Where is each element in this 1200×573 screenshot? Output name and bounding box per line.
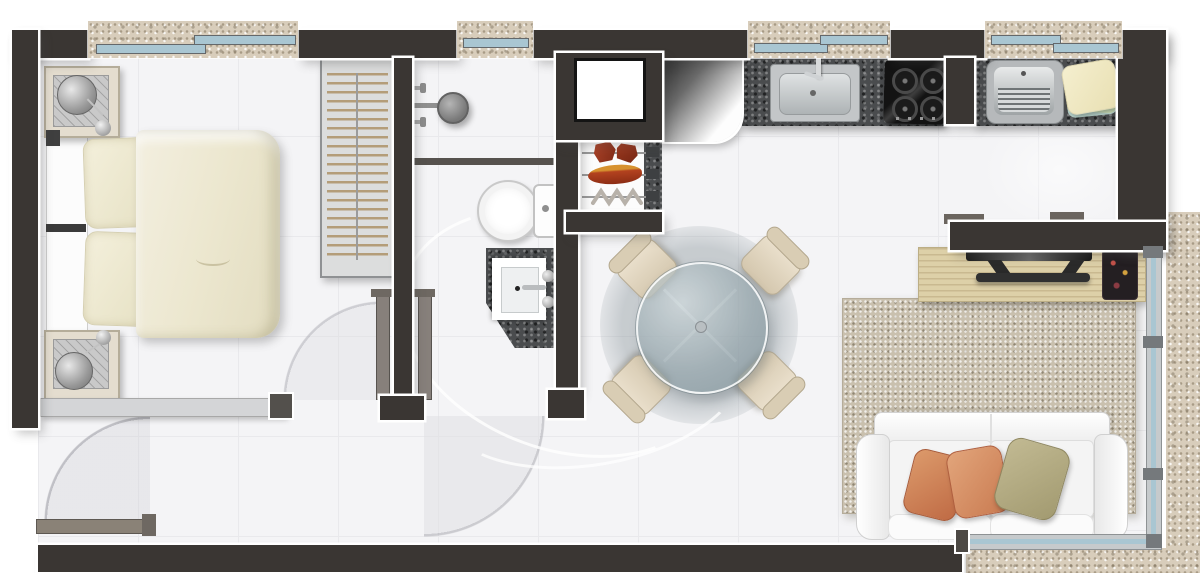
refrigerator xyxy=(658,56,742,142)
wall-cap-bedroom xyxy=(380,396,424,420)
bed-tray xyxy=(46,224,86,232)
bedroom-sliding-door-bracket xyxy=(270,394,292,418)
bed-duvet xyxy=(136,130,280,338)
wall-kitchen-stub xyxy=(946,58,974,124)
toilet-bowl xyxy=(477,180,539,242)
vanity-basin-inner xyxy=(501,267,539,313)
entry-door-hinge xyxy=(142,514,156,536)
floor-plan xyxy=(0,0,1200,573)
sofa-arm-left xyxy=(856,434,890,540)
bed-base xyxy=(46,130,88,338)
wall-living-divider xyxy=(950,222,1166,250)
balcony-rail-end-cap xyxy=(956,530,968,552)
balcony-rail-mullion-low xyxy=(1143,468,1163,480)
shower-valve-bottom-knob xyxy=(420,117,426,127)
balcony-rail-mullion-top xyxy=(1143,246,1163,258)
towel-cream xyxy=(1060,58,1122,117)
balcony-granite-floor-bottom xyxy=(966,548,1200,573)
table-lamp-top-shade xyxy=(57,75,97,115)
bedroom-window-pane-right xyxy=(194,35,296,45)
dining-table-hub xyxy=(695,321,707,333)
cooktop-burner-1 xyxy=(892,68,918,94)
vanity-drain xyxy=(515,286,520,291)
kitchen-sink-drain xyxy=(810,90,816,96)
bedroom-door-swing-arc xyxy=(280,298,382,400)
cooktop-knobs xyxy=(896,117,936,120)
balcony-rail-corner-block xyxy=(1146,534,1162,548)
vanity-faucet-knob-bottom xyxy=(542,296,554,308)
wall-left xyxy=(12,30,38,428)
bedroom-sliding-door xyxy=(40,398,286,417)
sofa-back-seam xyxy=(990,414,992,442)
shower-partition xyxy=(412,158,556,165)
wall-top-b xyxy=(298,30,457,58)
bed-headboard-item xyxy=(46,130,60,146)
sofa-arm-right xyxy=(1094,434,1128,540)
toilet-flush-button xyxy=(542,205,549,212)
wall-right xyxy=(1118,30,1166,250)
grill-spring-icon xyxy=(590,186,650,208)
laundry-tub-ridges xyxy=(998,88,1050,112)
entry-door-swing-arc xyxy=(40,412,150,522)
tv-base xyxy=(976,273,1090,282)
table-lamp-top-sphere xyxy=(95,120,111,136)
wall-niche-bottom xyxy=(566,212,662,232)
balcony-rail-glass-vertical xyxy=(1151,254,1156,540)
laundry-tub-drain xyxy=(1021,71,1026,76)
duct-shaft xyxy=(574,58,646,122)
door-panel-bedroom xyxy=(376,296,390,400)
bedroom-window-pane-left xyxy=(96,44,206,54)
entry-door-leaf xyxy=(36,519,152,534)
kitchen-window-pane-right xyxy=(820,35,888,45)
wall-cap-bathroom xyxy=(548,390,584,418)
wall-bedroom-bathroom xyxy=(394,58,412,396)
balcony-rail-mullion-mid xyxy=(1143,336,1163,348)
vanity-faucet-spout xyxy=(522,285,546,290)
wall-bottom xyxy=(38,545,962,572)
balcony-granite-floor xyxy=(1166,212,1200,573)
shower-valve-top-knob xyxy=(420,83,426,93)
wall-top-d xyxy=(890,30,985,58)
door-panel-bedroom-cap xyxy=(371,289,393,297)
mini-console xyxy=(1102,250,1138,300)
shower-head xyxy=(437,92,469,124)
grill-bracket-2 xyxy=(646,169,659,179)
cooktop-burner-2 xyxy=(920,68,946,94)
grill-bracket-1 xyxy=(646,147,659,157)
laundry-window-pane-left xyxy=(991,35,1061,45)
wall-bathroom-right xyxy=(556,130,578,392)
door-panel-bathroom xyxy=(418,296,432,400)
balcony-rail-glass-horizontal xyxy=(968,539,1154,544)
laundry-window-pane-right xyxy=(1053,43,1119,53)
bathroom-window-pane xyxy=(463,38,529,48)
vanity-faucet-knob-top xyxy=(542,270,554,282)
duvet-crease xyxy=(196,252,230,266)
kitchen-window-pane-left xyxy=(754,43,828,53)
wardrobe-rail xyxy=(356,73,358,260)
table-lamp-bottom-sphere xyxy=(96,330,111,345)
door-panel-bathroom-cap xyxy=(413,289,435,297)
table-lamp-bottom-shade xyxy=(55,352,93,390)
